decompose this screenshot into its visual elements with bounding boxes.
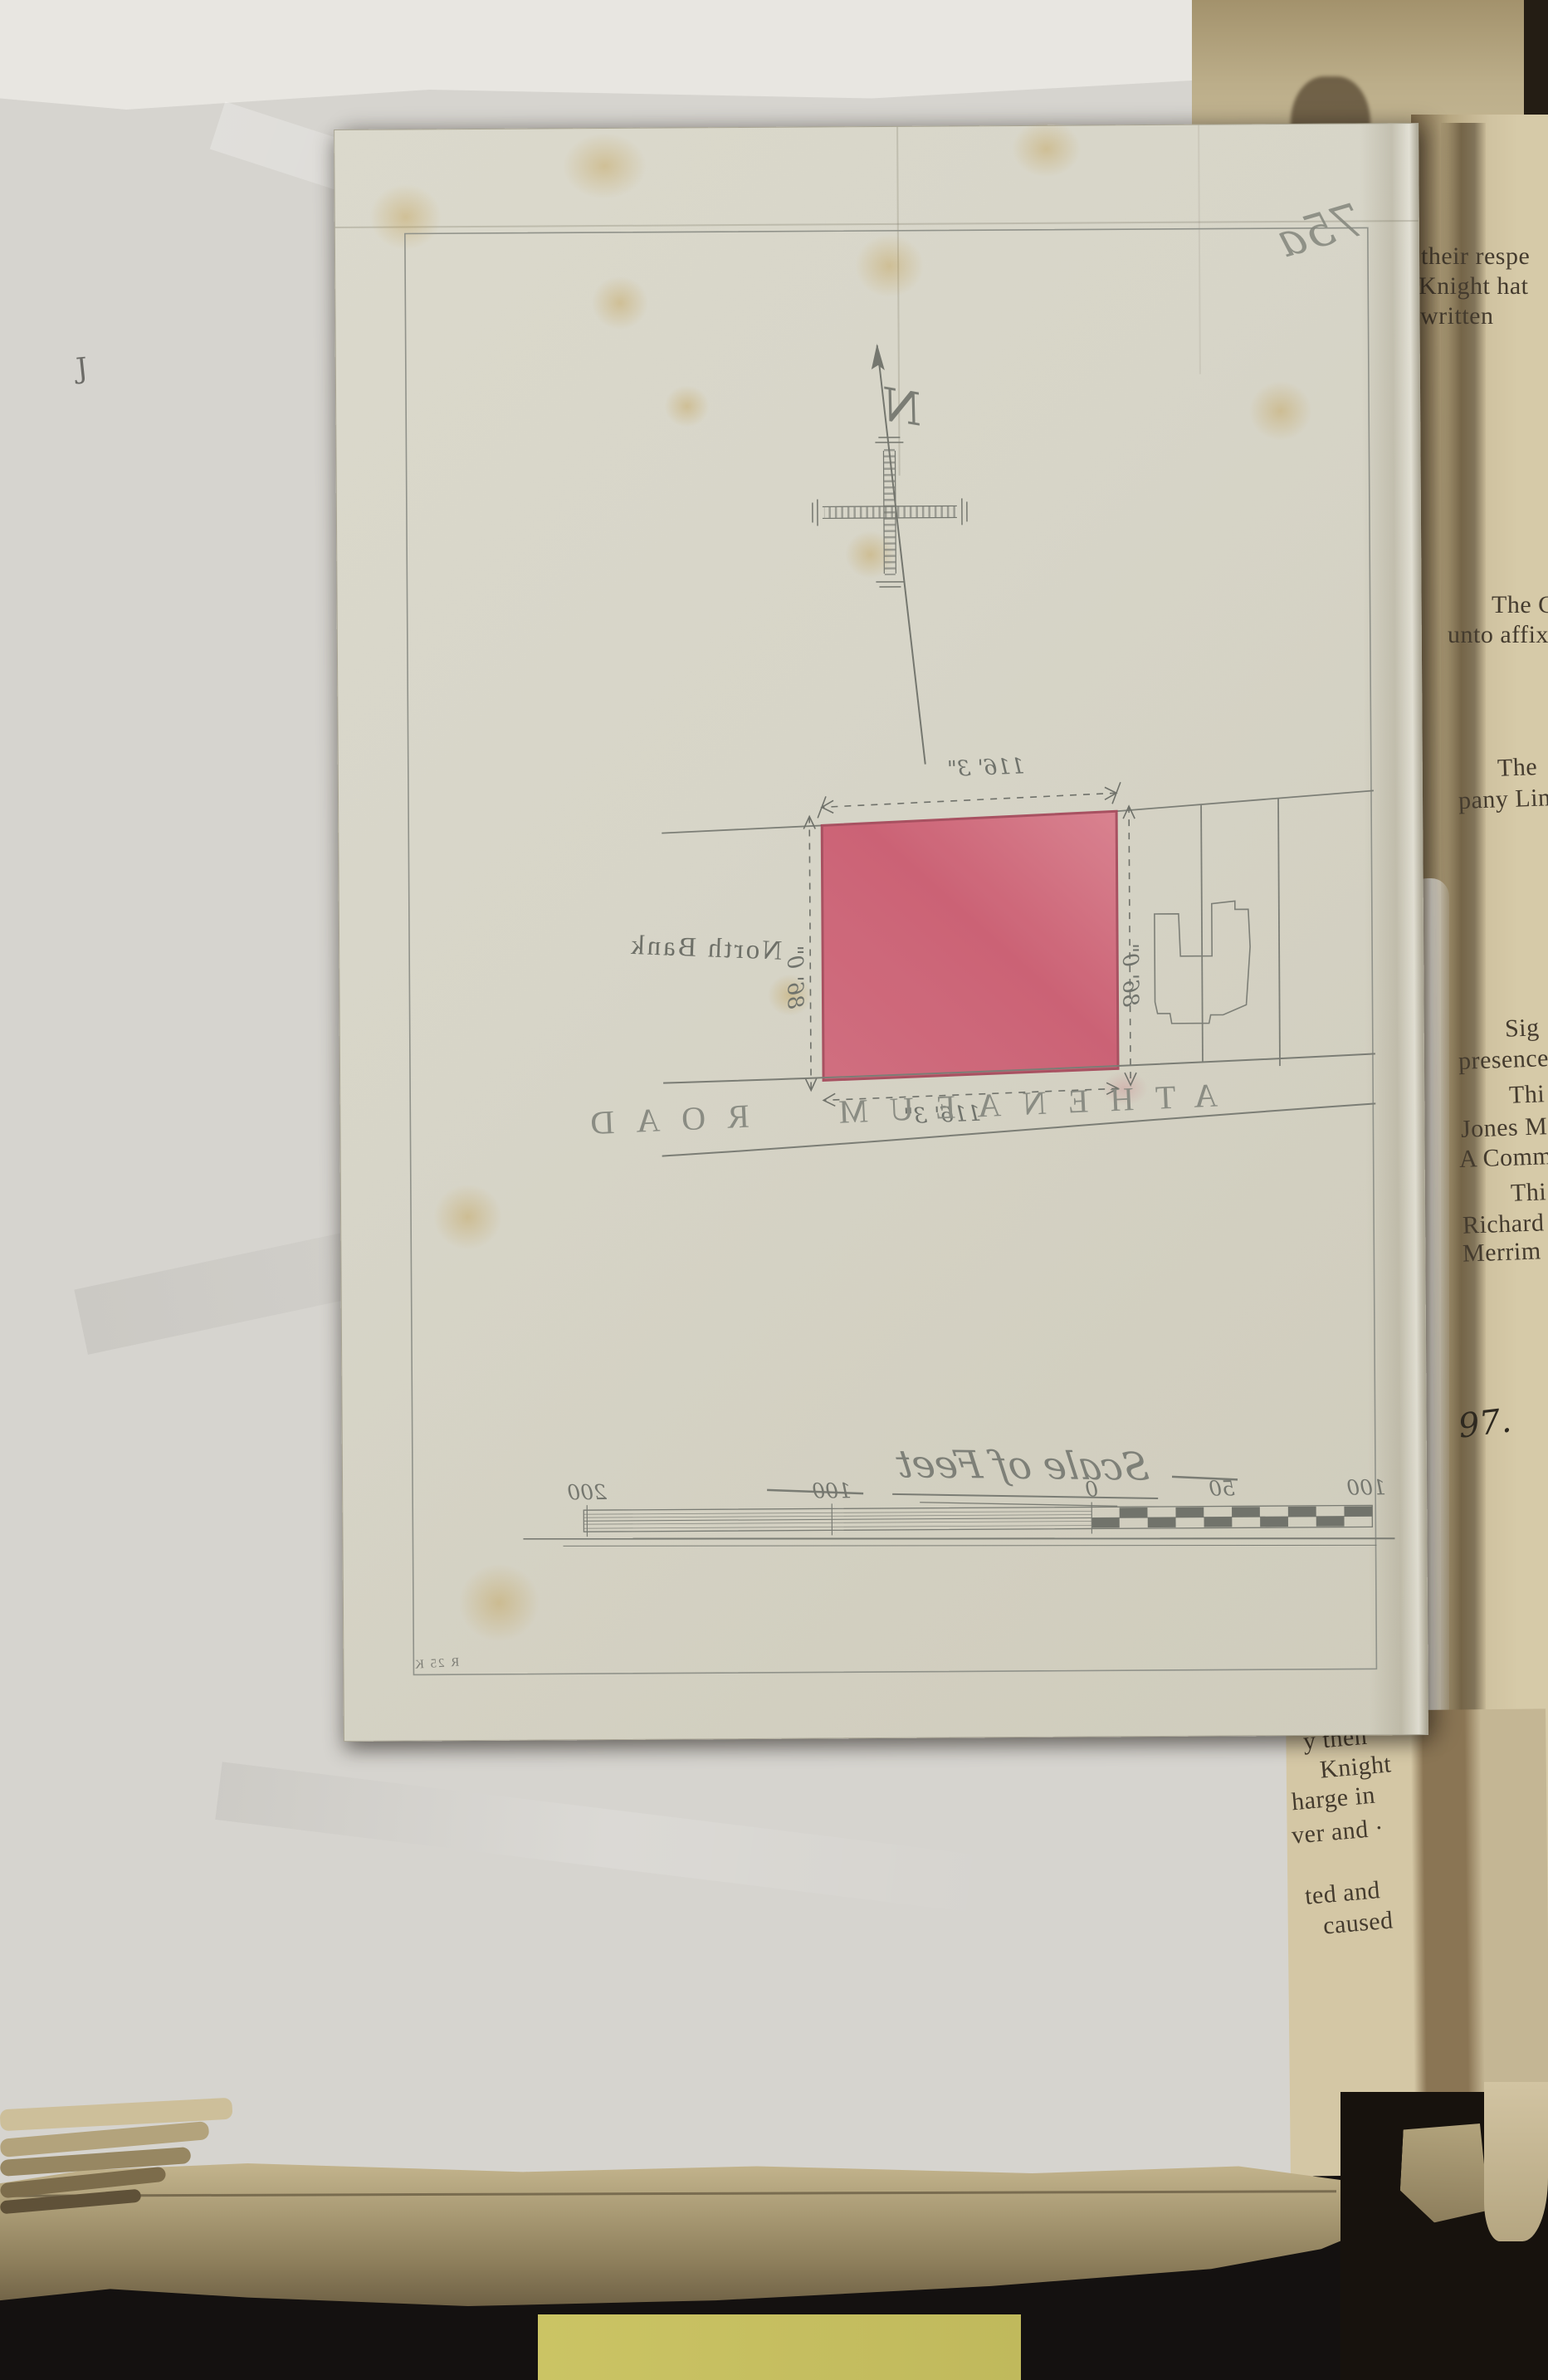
printed-line: A Comm <box>1458 1142 1548 1174</box>
scale-tick-100: 100 <box>1346 1475 1386 1499</box>
margin-pencil-mark: J <box>75 351 90 385</box>
printed-line: Richard <box>1462 1209 1545 1239</box>
plan-linework <box>335 124 1428 1741</box>
printed-line: Knight hat <box>1419 272 1529 301</box>
tracing-paper-plan: 75a N 116' 3" 116' 3" 86' 0" 86' 0" Nort… <box>334 123 1428 1742</box>
printed-line: Thi <box>1510 1178 1546 1207</box>
printed-line: presence <box>1458 1044 1548 1076</box>
corner-inscription: R 25 K <box>413 1656 460 1673</box>
printed-line: The <box>1497 753 1537 783</box>
printed-line: Thi <box>1508 1080 1545 1109</box>
mirrored-plan-layer: 75a N 116' 3" 116' 3" 86' 0" 86' 0" Nort… <box>335 124 1428 1741</box>
folio-number: 97. <box>1456 1401 1513 1445</box>
scale-tick-0: 0 <box>1082 1477 1101 1501</box>
printed-line: pany Lim <box>1458 784 1548 815</box>
scanned-deed-book-photo: J their respe Knight hat written The C u… <box>0 0 1548 2380</box>
printed-line: their respe <box>1421 242 1530 271</box>
printed-line: unto affix <box>1448 621 1548 649</box>
north-bank-label: North Bank <box>628 931 783 967</box>
printed-line: written <box>1420 302 1493 330</box>
scale-tick-200: 200 <box>567 1480 607 1504</box>
paper-crease-shadow <box>215 1762 1004 1915</box>
printed-line: The C <box>1492 591 1548 619</box>
printed-line: Jones M <box>1460 1112 1547 1144</box>
book-bottom-page-edges <box>0 2163 1376 2306</box>
page-bottom-corner <box>1484 2082 1548 2241</box>
scale-bar <box>523 1500 1394 1550</box>
printed-line: Merrim <box>1462 1237 1541 1268</box>
scale-tick-50: 50 <box>1205 1476 1238 1500</box>
north-arrow-head <box>872 344 885 370</box>
printed-line: Sig <box>1504 1014 1540 1043</box>
scale-title: Scale of Feet <box>881 1441 1164 1489</box>
binding-notch <box>1524 0 1548 123</box>
tissue-top-fold <box>0 0 1263 125</box>
dimension-west-side: 86' 0" <box>1117 943 1142 1007</box>
dimension-east-side: 86' 0" <box>782 946 807 1009</box>
yellow-slip <box>538 2314 1021 2380</box>
parcel-red <box>822 811 1118 1080</box>
scale-tick-100b: 100 <box>812 1478 852 1503</box>
